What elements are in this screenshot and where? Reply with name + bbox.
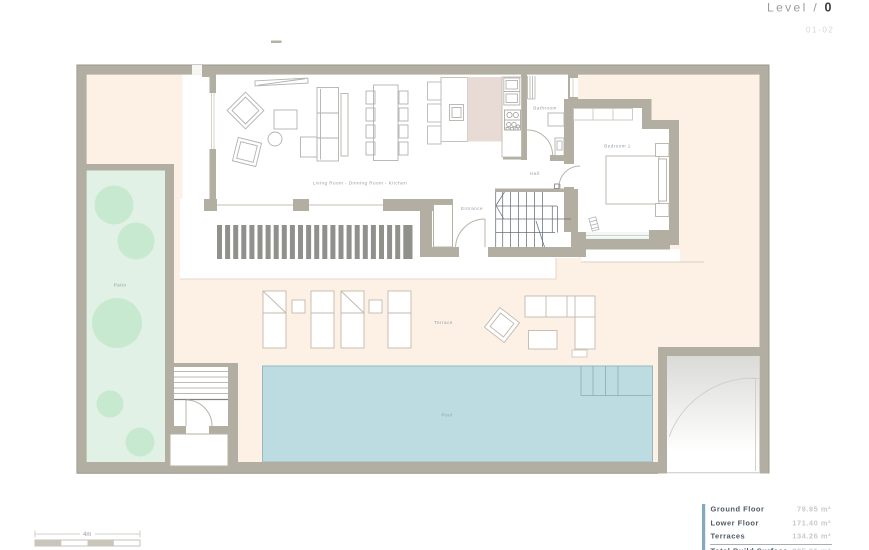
svg-text:Pool: Pool [442,413,453,418]
svg-text:Bathroom: Bathroom [533,106,557,111]
svg-text:Total Build Surface: Total Build Surface [711,547,788,550]
svg-text:Lower Floor: Lower Floor [711,519,759,528]
svg-text:385.61 m²: 385.61 m² [792,547,831,550]
svg-text:01-02: 01-02 [806,26,834,35]
svg-text:Hall: Hall [530,171,540,176]
svg-text:Level /: Level / [767,1,819,15]
svg-text:79.95 m²: 79.95 m² [797,505,831,514]
svg-text:Bedroom 1: Bedroom 1 [604,144,631,149]
svg-text:0: 0 [825,1,832,15]
svg-text:Terrace: Terrace [434,320,452,325]
svg-text:Ground Floor: Ground Floor [711,505,765,514]
svg-text:4m: 4m [83,532,91,538]
svg-text:134.26 m²: 134.26 m² [792,532,831,541]
svg-text:Terraces: Terraces [711,532,746,541]
svg-text:171.40 m²: 171.40 m² [792,519,831,528]
svg-text:Patio: Patio [114,283,127,288]
svg-text:Entrance: Entrance [461,206,483,211]
svg-text:Living Room - Dinning Room - K: Living Room - Dinning Room - Kitchen [313,181,407,186]
